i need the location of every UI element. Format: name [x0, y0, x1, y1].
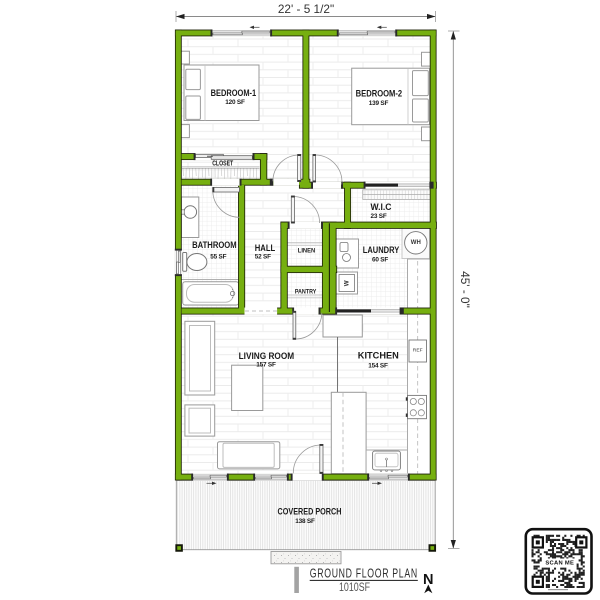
- svg-text:45' - 0": 45' - 0": [458, 271, 472, 308]
- svg-text:BEDROOM-2: BEDROOM-2: [356, 89, 403, 99]
- svg-text:W: W: [343, 280, 350, 286]
- svg-text:WH: WH: [411, 240, 421, 246]
- svg-text:GROUND FLOOR PLAN: GROUND FLOOR PLAN: [310, 565, 418, 580]
- svg-text:55 SF: 55 SF: [210, 254, 226, 261]
- svg-text:157 SF: 157 SF: [256, 362, 276, 369]
- svg-text:120 SF: 120 SF: [225, 99, 245, 106]
- svg-text:23 SF: 23 SF: [370, 213, 386, 220]
- svg-text:60 SF: 60 SF: [372, 257, 388, 264]
- svg-text:BEDROOM-1: BEDROOM-1: [211, 88, 257, 98]
- svg-text:LIVING ROOM: LIVING ROOM: [239, 351, 295, 361]
- svg-text:REF: REF: [413, 347, 423, 353]
- svg-text:BATHROOM: BATHROOM: [192, 240, 237, 250]
- svg-text:CLOSET: CLOSET: [212, 160, 234, 167]
- svg-text:138 SF: 138 SF: [295, 518, 315, 525]
- svg-text:22' - 5 1/2": 22' - 5 1/2": [278, 2, 334, 16]
- svg-text:SCAN ME: SCAN ME: [545, 560, 574, 566]
- svg-text:KITCHEN: KITCHEN: [358, 351, 399, 361]
- svg-text:HALL: HALL: [255, 243, 276, 253]
- svg-text:139 SF: 139 SF: [369, 100, 389, 107]
- svg-text:W.I.C: W.I.C: [371, 202, 392, 212]
- svg-text:COVERED PORCH: COVERED PORCH: [278, 507, 342, 517]
- svg-text:154 SF: 154 SF: [368, 362, 388, 369]
- svg-text:52 SF: 52 SF: [255, 254, 271, 261]
- svg-text:PANTRY: PANTRY: [295, 288, 317, 295]
- svg-text:LINEN: LINEN: [298, 247, 316, 254]
- svg-text:LAUNDRY: LAUNDRY: [363, 245, 400, 255]
- svg-text:1010SF: 1010SF: [339, 582, 370, 594]
